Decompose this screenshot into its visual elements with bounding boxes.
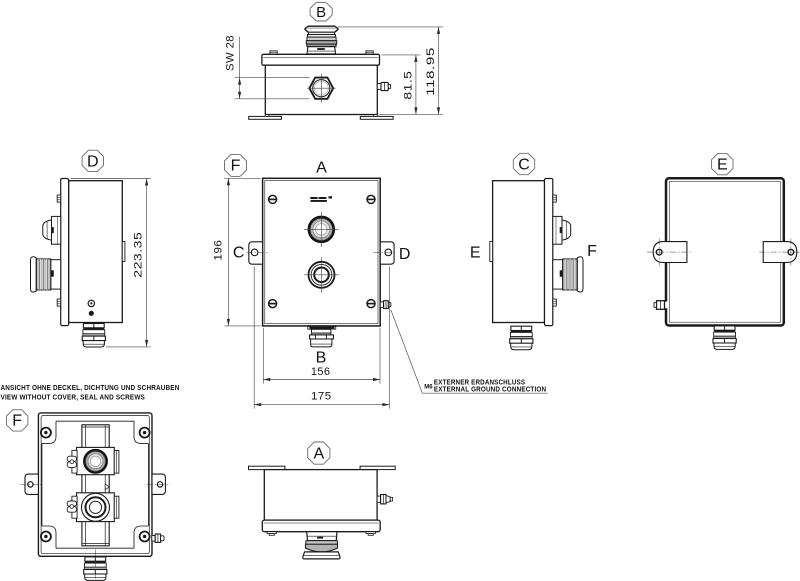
svg-text:D: D bbox=[399, 246, 411, 263]
svg-text:A: A bbox=[313, 445, 324, 462]
svg-text:F: F bbox=[12, 413, 22, 430]
svg-text:EXTERNAL GROUND CONNECTION: EXTERNAL GROUND CONNECTION bbox=[434, 387, 546, 394]
svg-text:118.95: 118.95 bbox=[425, 47, 437, 96]
svg-text:223.35: 223.35 bbox=[132, 232, 144, 278]
svg-text:C: C bbox=[518, 156, 530, 173]
svg-text:EXTERNER ERDANSCHLUSS: EXTERNER ERDANSCHLUSS bbox=[434, 379, 525, 386]
svg-text:F: F bbox=[587, 243, 597, 260]
svg-text:175: 175 bbox=[311, 391, 332, 403]
svg-text:D: D bbox=[87, 154, 99, 171]
svg-text:196: 196 bbox=[213, 240, 225, 261]
svg-text:81.5: 81.5 bbox=[402, 71, 414, 100]
svg-text:SW 28: SW 28 bbox=[225, 35, 237, 71]
svg-text:M6: M6 bbox=[424, 385, 433, 391]
svg-text:C: C bbox=[233, 245, 245, 262]
svg-text:B: B bbox=[316, 349, 327, 366]
svg-text:F: F bbox=[231, 158, 241, 175]
svg-text:ANSICHT OHNE DECKEL, DICHTUNG: ANSICHT OHNE DECKEL, DICHTUNG UND SCHRAU… bbox=[1, 385, 180, 392]
svg-text:A: A bbox=[316, 160, 327, 177]
svg-text:156: 156 bbox=[311, 366, 331, 378]
svg-text:B: B bbox=[316, 4, 326, 21]
svg-text:E: E bbox=[470, 245, 481, 262]
svg-text:VIEW WITHOUT COVER, SEAL AND S: VIEW WITHOUT COVER, SEAL AND SCREWS bbox=[1, 395, 146, 402]
svg-text:E: E bbox=[717, 156, 728, 173]
